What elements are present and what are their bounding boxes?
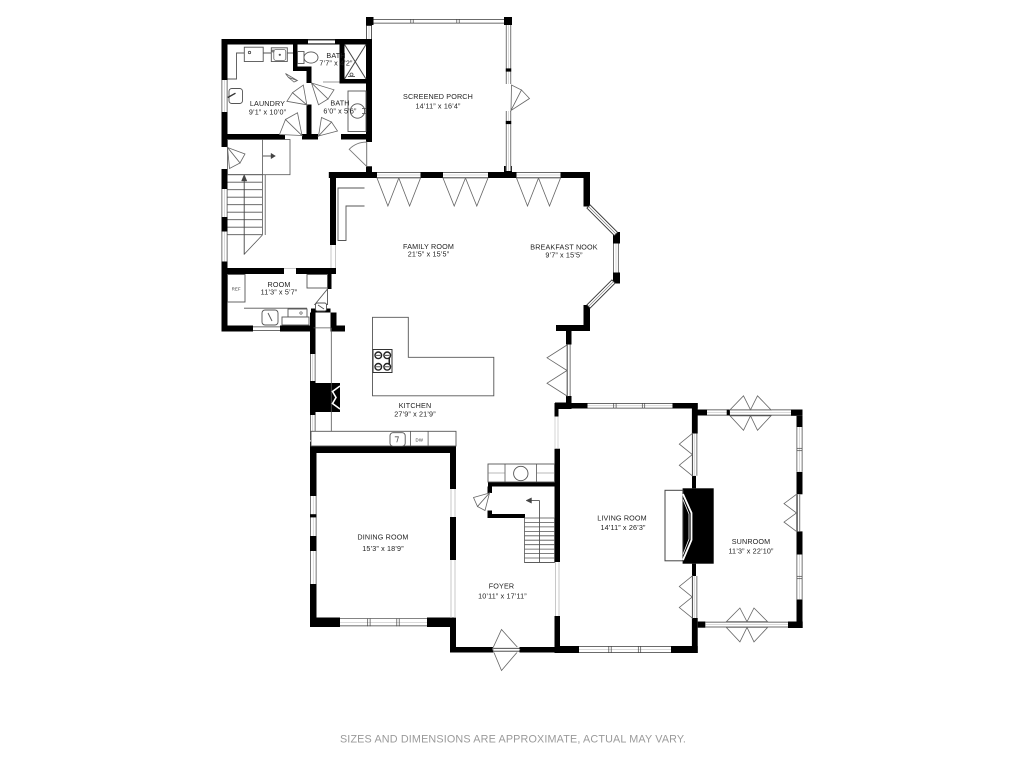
svg-text:6’0” x 5’6”: 6’0” x 5’6” bbox=[323, 107, 357, 116]
svg-text:DINING ROOM: DINING ROOM bbox=[357, 533, 408, 542]
svg-text:14’11” x 16’4”: 14’11” x 16’4” bbox=[415, 102, 461, 111]
svg-text:SCREENED PORCH: SCREENED PORCH bbox=[403, 92, 473, 101]
svg-text:9’7” x 15’5”: 9’7” x 15’5” bbox=[545, 251, 583, 260]
svg-text:27’9” x 21’9”: 27’9” x 21’9” bbox=[394, 410, 436, 419]
svg-text:DW: DW bbox=[416, 438, 424, 443]
svg-text:9’1” x 10’0”: 9’1” x 10’0” bbox=[249, 108, 287, 117]
svg-text:REF: REF bbox=[232, 287, 241, 292]
svg-text:7’7” x 4’2”: 7’7” x 4’2” bbox=[319, 59, 353, 68]
svg-text:10’11” x 17’11”: 10’11” x 17’11” bbox=[478, 592, 527, 601]
svg-text:21’5” x 15’5”: 21’5” x 15’5” bbox=[408, 250, 450, 259]
svg-text:11’3” x 5’7”: 11’3” x 5’7” bbox=[261, 288, 298, 297]
svg-text:LIVING ROOM: LIVING ROOM bbox=[597, 514, 647, 523]
svg-text:SIZES AND DIMENSIONS ARE APPRO: SIZES AND DIMENSIONS ARE APPROXIMATE, AC… bbox=[340, 734, 686, 746]
svg-text:SUNROOM: SUNROOM bbox=[732, 537, 771, 546]
svg-text:11’3” x 22’10”: 11’3” x 22’10” bbox=[728, 547, 774, 556]
svg-text:15’3” x 18’9”: 15’3” x 18’9” bbox=[362, 544, 404, 553]
svg-text:FOYER: FOYER bbox=[489, 582, 515, 591]
svg-text:14’11” x 26’3”: 14’11” x 26’3” bbox=[600, 523, 646, 532]
